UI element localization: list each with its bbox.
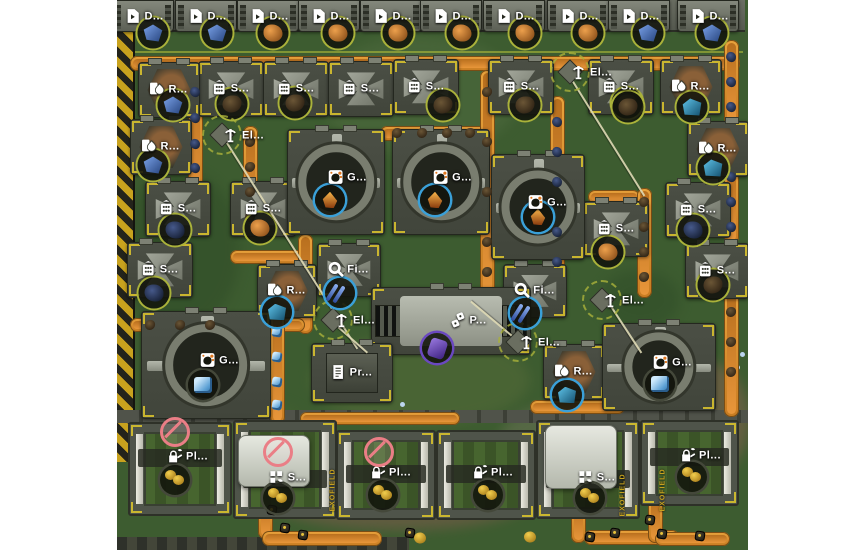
product-sticks (325, 278, 355, 308)
tile-corner (313, 345, 324, 356)
tile-corner (372, 222, 383, 233)
tile-corner (187, 64, 198, 75)
ore-orange-blob (251, 219, 270, 236)
tile-corner (316, 104, 327, 115)
product-fruit (677, 462, 707, 492)
tile-corner (709, 61, 720, 72)
digger-tread (290, 5, 296, 29)
ore-node-blue[interactable] (202, 18, 233, 49)
ore-node-blue[interactable] (633, 18, 664, 49)
product-glass (188, 370, 218, 400)
ore-orange-blob (264, 24, 283, 41)
field-label-band (138, 449, 222, 467)
exofield-text: EXOFIELD (660, 468, 667, 511)
ore-node-blue[interactable] (138, 18, 169, 49)
ore-node-dark[interactable] (280, 88, 311, 119)
tile-corner (718, 184, 729, 195)
conveyor-core (658, 535, 727, 543)
belt-item-fruit (413, 532, 426, 545)
tile-corner (662, 61, 673, 72)
digger-tread (240, 5, 246, 29)
product-glass-blob (194, 377, 212, 394)
ore-node-orange[interactable] (258, 18, 289, 49)
ore-node-teal[interactable] (677, 92, 708, 123)
ore-node-orange[interactable] (573, 18, 604, 49)
tile-corner (236, 423, 247, 434)
tile-corner (493, 156, 504, 167)
product-sticks (510, 298, 540, 328)
belt-item-seed (297, 529, 308, 540)
tile-corner (339, 506, 350, 517)
tile-corner (626, 505, 637, 516)
prohibited-icon (160, 417, 190, 447)
tile-corner (394, 222, 405, 233)
power-pole[interactable] (550, 52, 590, 92)
belt-item-seed (584, 531, 595, 542)
platform-guide-line (133, 51, 743, 53)
ore-blue-blob (144, 24, 163, 41)
game-viewport: D...D...D...D...D...D...D...D...D...D...… (117, 0, 748, 550)
digger-tread (363, 5, 369, 29)
ore-teal-blob (683, 98, 702, 115)
product-fruit-blob (165, 470, 186, 490)
tile-corner (129, 244, 140, 255)
product-glass (645, 369, 675, 399)
product-fruit-blob (373, 485, 394, 505)
product-sticks-blob (515, 303, 536, 324)
ore-node-darkblue[interactable] (160, 215, 191, 246)
product-fruit-blob (580, 488, 601, 508)
ore-blue-blob (144, 156, 163, 173)
prohibited-icon (364, 437, 394, 467)
belt-item-glass (271, 376, 282, 387)
tile-corner (687, 286, 698, 297)
ore-darkblue-blob (145, 284, 164, 301)
tile-corner (179, 121, 190, 132)
ore-node-darkblue[interactable] (139, 278, 170, 309)
tile-corner (539, 505, 550, 516)
ore-node-darkblue[interactable] (678, 215, 709, 246)
product-flame-blob (426, 192, 444, 209)
belt-item-seed (644, 514, 655, 525)
power-pole[interactable] (498, 322, 538, 362)
tile-corner (259, 266, 270, 277)
ore-dark-blob (223, 95, 242, 112)
tile-corner (667, 225, 678, 236)
tile-corner (493, 247, 504, 258)
tile-corner (143, 406, 154, 417)
belt-item-glass (271, 326, 282, 337)
tile-tabs (553, 340, 595, 347)
tile-corner (446, 61, 457, 72)
tile-tabs (500, 55, 542, 62)
machine-body (339, 72, 384, 105)
tile-corner (643, 492, 654, 503)
product-flame (315, 185, 345, 215)
tile-corner (604, 325, 615, 336)
ore-node-orange[interactable] (383, 18, 414, 49)
tile-tabs (430, 283, 472, 290)
tile-tabs (670, 55, 712, 62)
tile-corner (505, 266, 516, 277)
tile-corner (604, 398, 615, 409)
conveyor-core (265, 534, 379, 543)
tile-tabs (185, 307, 227, 314)
tile-corner (339, 433, 350, 444)
belt-item-seed (609, 527, 620, 538)
tile-tabs (210, 57, 252, 64)
tile-corner (132, 121, 143, 132)
press-body (400, 296, 501, 346)
exofield-text: EXOFIELD (620, 473, 627, 516)
ore-node-dark[interactable] (698, 270, 729, 301)
tile-corner (140, 64, 151, 75)
tile-corner (251, 104, 262, 115)
product-teal (552, 380, 582, 410)
tile-corner (554, 266, 565, 277)
product-flame-blob (321, 192, 339, 209)
tile-corner (323, 423, 334, 434)
belt-item-glass (271, 399, 282, 410)
tile-corner (381, 63, 392, 74)
product-fruit-blob (268, 488, 289, 508)
tile-corner (373, 289, 384, 300)
tile-tabs (405, 55, 447, 62)
product-teal-blob (268, 304, 286, 321)
digger-tread (486, 5, 492, 29)
ore-node-orange[interactable] (510, 18, 541, 49)
generator-building[interactable] (392, 129, 490, 235)
tile-corner (395, 102, 406, 113)
tile-corner (265, 63, 276, 74)
tile-corner (251, 63, 262, 74)
tile-corner (131, 502, 142, 513)
sower-vehicle[interactable] (545, 425, 617, 489)
tile-corner (179, 162, 190, 173)
tile-corner (703, 398, 714, 409)
tile-tabs (148, 58, 190, 65)
ore-dark-blob (434, 96, 453, 113)
ore-dark-blob (619, 98, 638, 115)
tile-corner (147, 183, 158, 194)
tile-corner (736, 245, 747, 256)
tile-corner (439, 506, 450, 517)
digger-tread (178, 5, 184, 29)
product-glass-blob (651, 376, 669, 393)
tile-corner (372, 131, 383, 142)
exofield-text: EXOFIELD (330, 468, 337, 511)
tile-corner (667, 184, 678, 195)
ore-dark-blob (516, 96, 535, 113)
tile-corner (265, 104, 276, 115)
ore-darkblue-blob (684, 221, 703, 238)
power-pole[interactable] (202, 115, 242, 155)
tile-corner (313, 390, 324, 401)
tile-corner (736, 164, 747, 175)
ore-node-dark[interactable] (613, 92, 644, 123)
ore-orange-blob (453, 24, 472, 41)
tile-corner (736, 286, 747, 297)
ore-node-orange[interactable] (245, 213, 276, 244)
ore-node-orange[interactable] (447, 18, 478, 49)
tile-corner (439, 433, 450, 444)
ore-blue-blob (164, 96, 183, 113)
tile-corner (422, 506, 433, 517)
tile-corner (198, 183, 209, 194)
tile-corner (626, 423, 637, 434)
digger-tread (680, 5, 686, 29)
tile-tabs (340, 57, 382, 64)
tile-corner (689, 123, 700, 134)
digger-tread (550, 5, 556, 29)
tile-tabs (697, 117, 739, 124)
tile-corner (232, 224, 243, 235)
digger-tread (413, 5, 419, 29)
power-pole[interactable] (582, 280, 622, 320)
product-purple (422, 333, 452, 363)
tile-corner (572, 156, 583, 167)
ore-node-blue[interactable] (158, 90, 189, 121)
tile-corner (198, 224, 209, 235)
tile-corner (131, 425, 142, 436)
belt-item-seed (656, 528, 667, 539)
ore-orange-blob (389, 24, 408, 41)
product-fruit (473, 480, 503, 510)
tile-corner (180, 244, 191, 255)
ore-node-orange[interactable] (593, 237, 624, 268)
tile-tabs (600, 55, 642, 62)
digger-tread (301, 5, 307, 29)
tile-corner (590, 61, 601, 72)
product-flame-blob (529, 209, 547, 226)
tile-corner (316, 63, 327, 74)
ore-blue-blob (639, 24, 658, 41)
tile-corner (422, 433, 433, 444)
digger-tread (423, 5, 429, 29)
ore-orange-blob (579, 24, 598, 41)
product-teal-blob (558, 387, 576, 404)
tile-corner (572, 247, 583, 258)
tile-corner (200, 104, 211, 115)
smelter-building[interactable] (328, 61, 394, 117)
product-fruit (160, 465, 190, 495)
digger-tread (730, 5, 736, 29)
product-fruit (368, 480, 398, 510)
tile-corner (554, 305, 565, 316)
tile-corner (585, 203, 596, 214)
product-fruit-blob (478, 485, 499, 505)
ore-orange-blob (599, 243, 618, 260)
ore-node-teal[interactable] (698, 153, 729, 184)
ore-node-orange[interactable] (323, 18, 354, 49)
product-fruit (575, 483, 605, 513)
tile-corner (380, 390, 391, 401)
field-rail (136, 434, 143, 504)
ore-node-dark[interactable] (510, 90, 541, 121)
belt-item-seed (279, 522, 290, 533)
prohibited-icon (263, 437, 293, 467)
field-rail (217, 434, 224, 504)
tile-tabs (157, 177, 199, 184)
tile-corner (147, 224, 158, 235)
belt-item-seed (694, 530, 705, 541)
tile-corner (545, 346, 556, 357)
tile-tabs (275, 57, 317, 64)
ore-orange-blob (516, 24, 535, 41)
product-fruit (263, 483, 293, 513)
ore-dark-blob (704, 276, 723, 293)
tile-corner (687, 245, 698, 256)
ore-blue-blob (703, 24, 722, 41)
generator-building[interactable] (287, 129, 385, 235)
ore-node-blue[interactable] (697, 18, 728, 49)
tile-corner (381, 104, 392, 115)
tile-corner (289, 131, 300, 142)
tile-tabs (638, 319, 680, 326)
tile-corner (641, 61, 652, 72)
flower-speck (400, 402, 405, 407)
ore-node-dark[interactable] (428, 90, 459, 121)
tile-corner (368, 245, 379, 256)
product-flame (523, 202, 553, 232)
tile-corner (218, 425, 229, 436)
tile-corner (725, 423, 736, 434)
tile-corner (218, 502, 229, 513)
tile-corner (490, 61, 501, 72)
tile-corner (319, 245, 330, 256)
digger-tread (611, 5, 617, 29)
tile-corner (395, 61, 406, 72)
tile-corner (477, 222, 488, 233)
tile-corner (725, 492, 736, 503)
product-sticks-blob (330, 283, 351, 304)
ore-blue-blob (208, 24, 227, 41)
tile-tabs (328, 239, 370, 246)
tile-tabs (315, 125, 357, 132)
product-purple-blob (426, 337, 447, 360)
tile-corner (330, 63, 341, 74)
printer-building[interactable] (311, 343, 393, 403)
product-teal (262, 297, 292, 327)
printer-body (326, 353, 377, 392)
product-flame (420, 185, 450, 215)
belt-item-fruit (523, 531, 536, 544)
tile-corner (330, 104, 341, 115)
ore-darkblue-blob (166, 221, 185, 238)
tile-tabs (595, 197, 637, 204)
tile-corner (703, 325, 714, 336)
ore-teal-blob (704, 159, 723, 176)
product-fruit-blob (682, 467, 703, 487)
ore-orange-blob (329, 24, 348, 41)
ore-dark-blob (286, 94, 305, 111)
digger-tread (117, 5, 121, 29)
tile-corner (380, 345, 391, 356)
tile-tabs (514, 260, 556, 267)
tile-corner (541, 102, 552, 113)
tile-corner (522, 506, 533, 517)
ore-node-blue[interactable] (138, 150, 169, 181)
tile-corner (662, 102, 673, 113)
tile-corner (180, 285, 191, 296)
tile-corner (200, 63, 211, 74)
tile-corner (236, 505, 247, 516)
tile-corner (232, 183, 243, 194)
tile-corner (522, 433, 533, 444)
belt-item-glass (271, 351, 282, 362)
tile-corner (258, 406, 269, 417)
tile-corner (736, 123, 747, 134)
tile-corner (490, 102, 501, 113)
flower-speck (740, 352, 745, 357)
tile-corner (643, 423, 654, 434)
conveyor-segment[interactable] (262, 531, 382, 546)
tile-corner (709, 102, 720, 113)
tile-corner (289, 222, 300, 233)
